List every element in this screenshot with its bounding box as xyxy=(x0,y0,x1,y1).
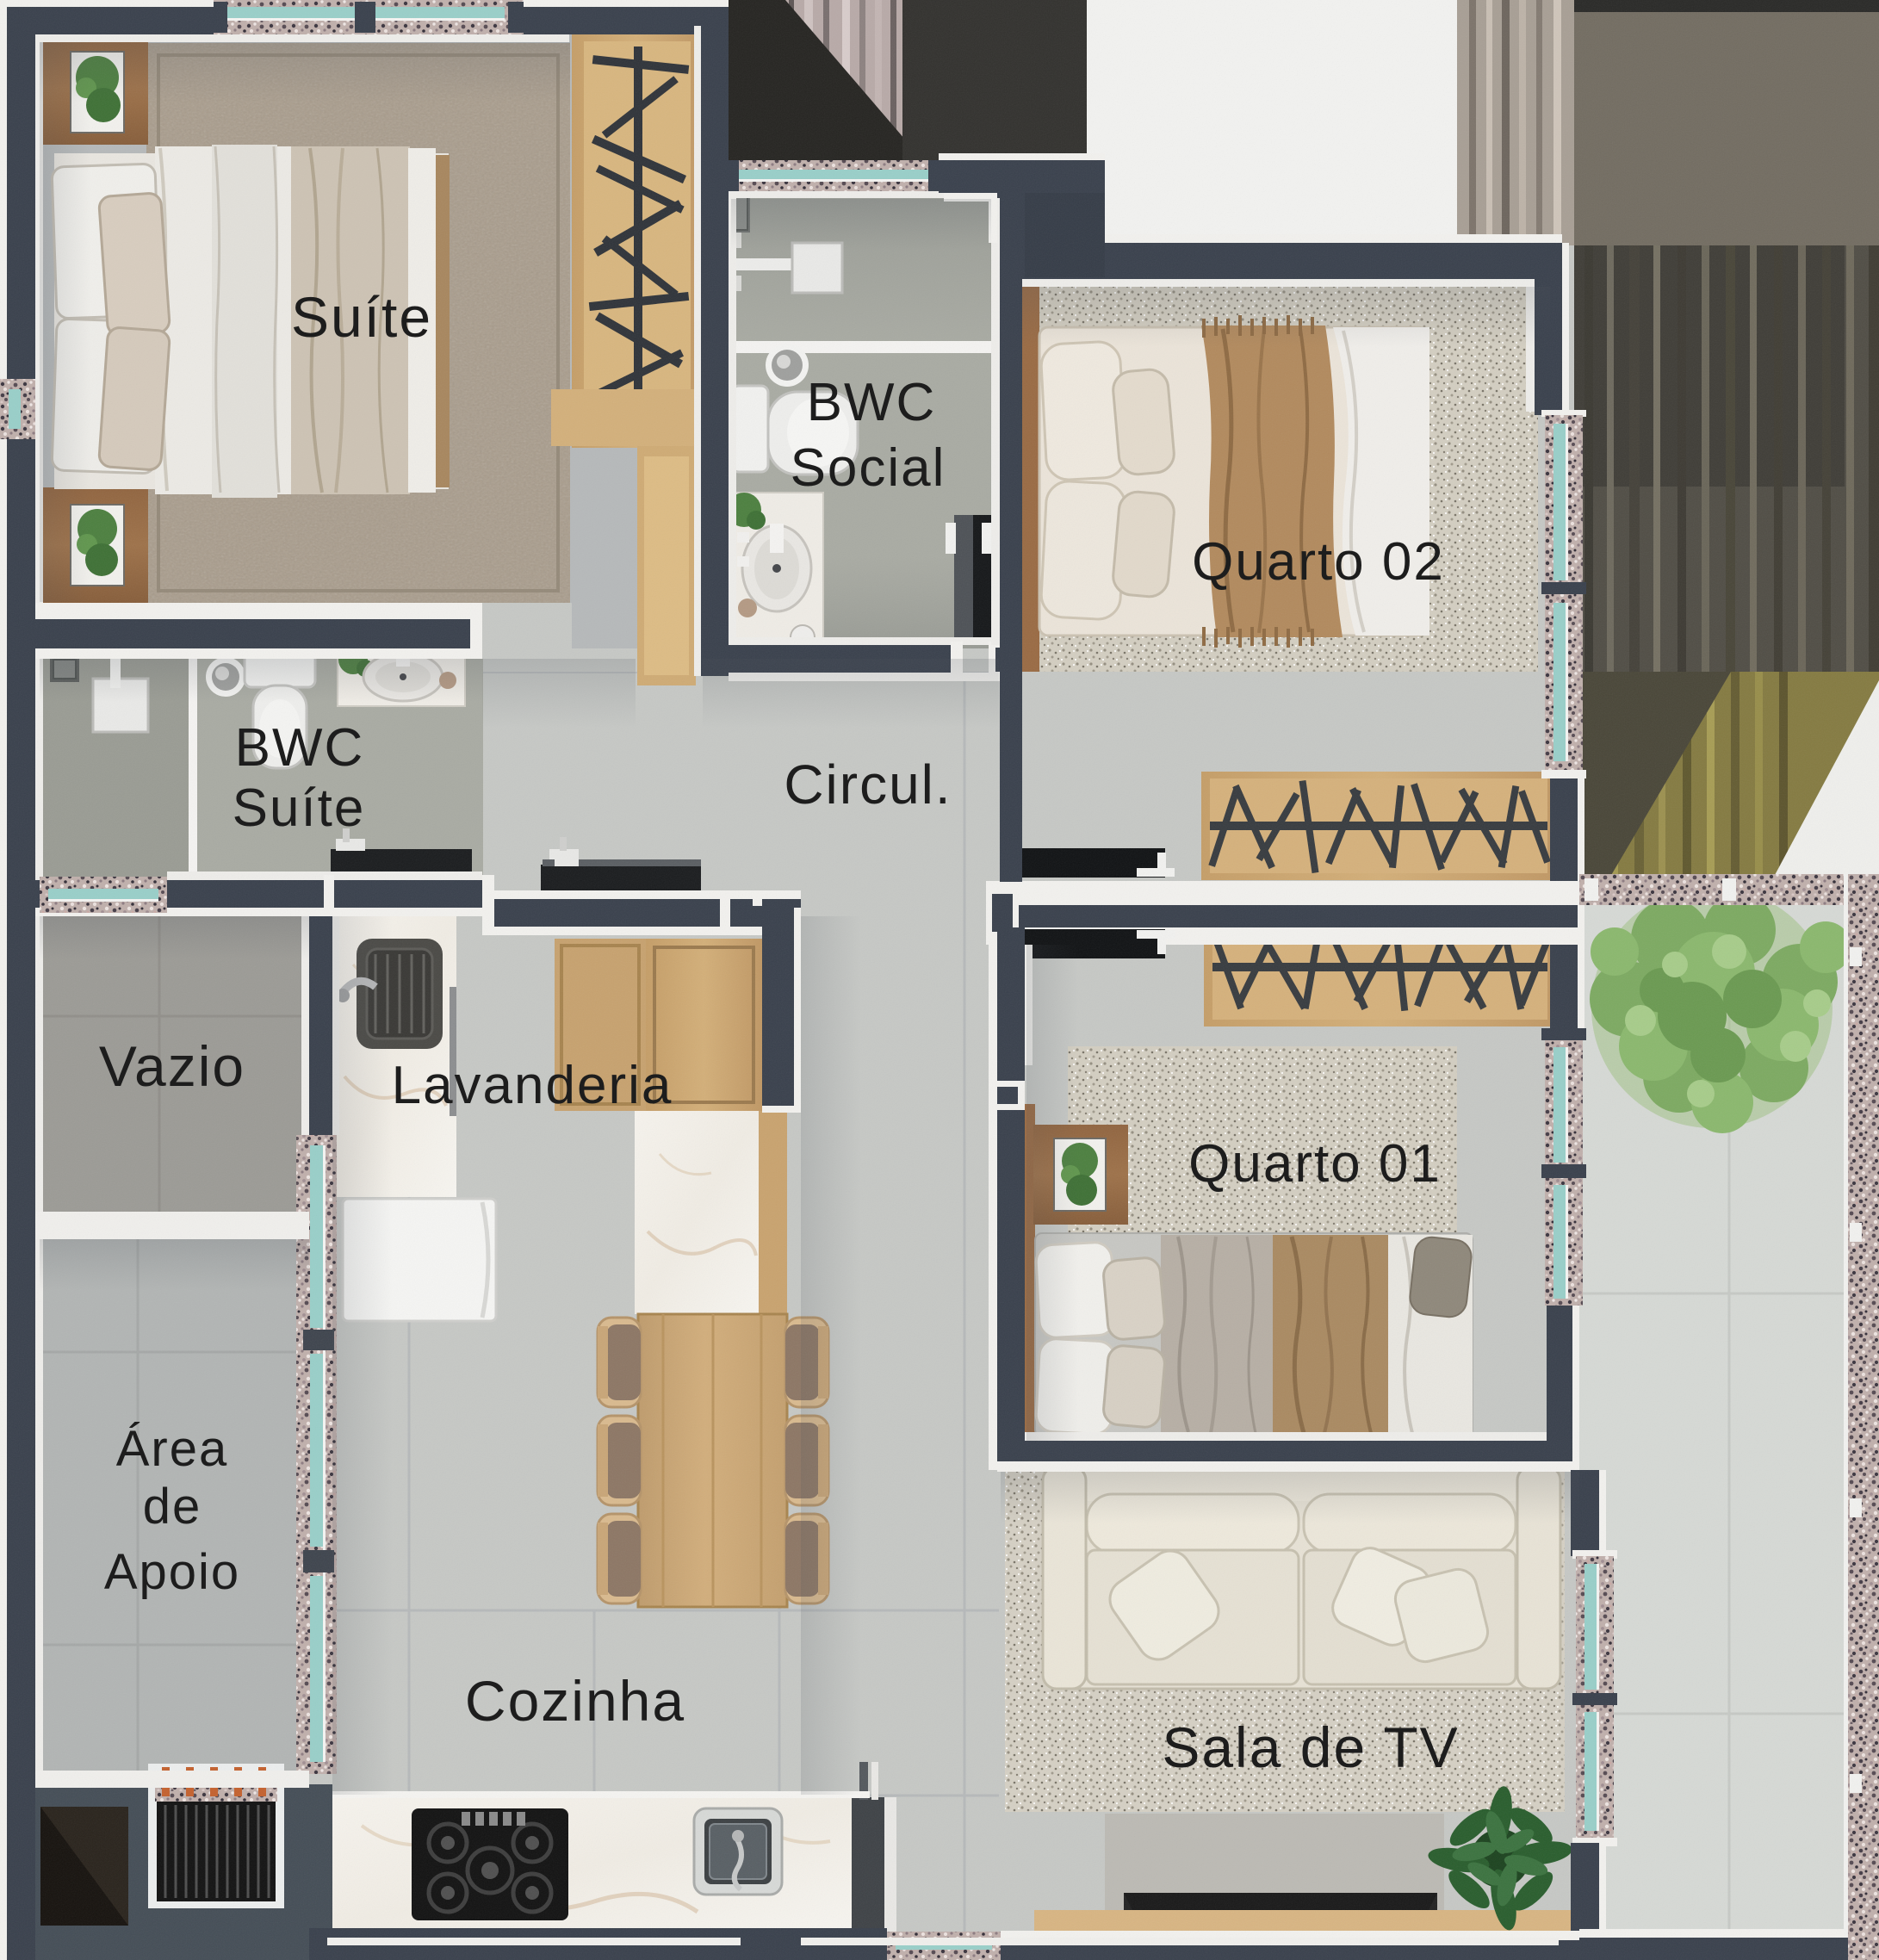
svg-text:Suíte: Suíte xyxy=(291,285,432,349)
svg-text:BWC: BWC xyxy=(235,718,365,778)
svg-text:Quarto 01: Quarto 01 xyxy=(1188,1134,1442,1194)
svg-text:Social: Social xyxy=(791,438,946,498)
svg-text:Sala de TV: Sala de TV xyxy=(1162,1715,1459,1779)
svg-text:Quarto 02: Quarto 02 xyxy=(1192,532,1445,592)
svg-text:Área: Área xyxy=(116,1421,229,1477)
svg-text:Circul.: Circul. xyxy=(784,754,952,816)
svg-text:Vazio: Vazio xyxy=(99,1034,245,1098)
svg-text:Cozinha: Cozinha xyxy=(465,1669,685,1733)
svg-text:de: de xyxy=(143,1479,202,1535)
svg-text:BWC: BWC xyxy=(807,373,937,432)
svg-text:Suíte: Suíte xyxy=(233,778,366,838)
svg-text:Apoio: Apoio xyxy=(104,1544,240,1600)
svg-text:Lavanderia: Lavanderia xyxy=(392,1056,673,1115)
